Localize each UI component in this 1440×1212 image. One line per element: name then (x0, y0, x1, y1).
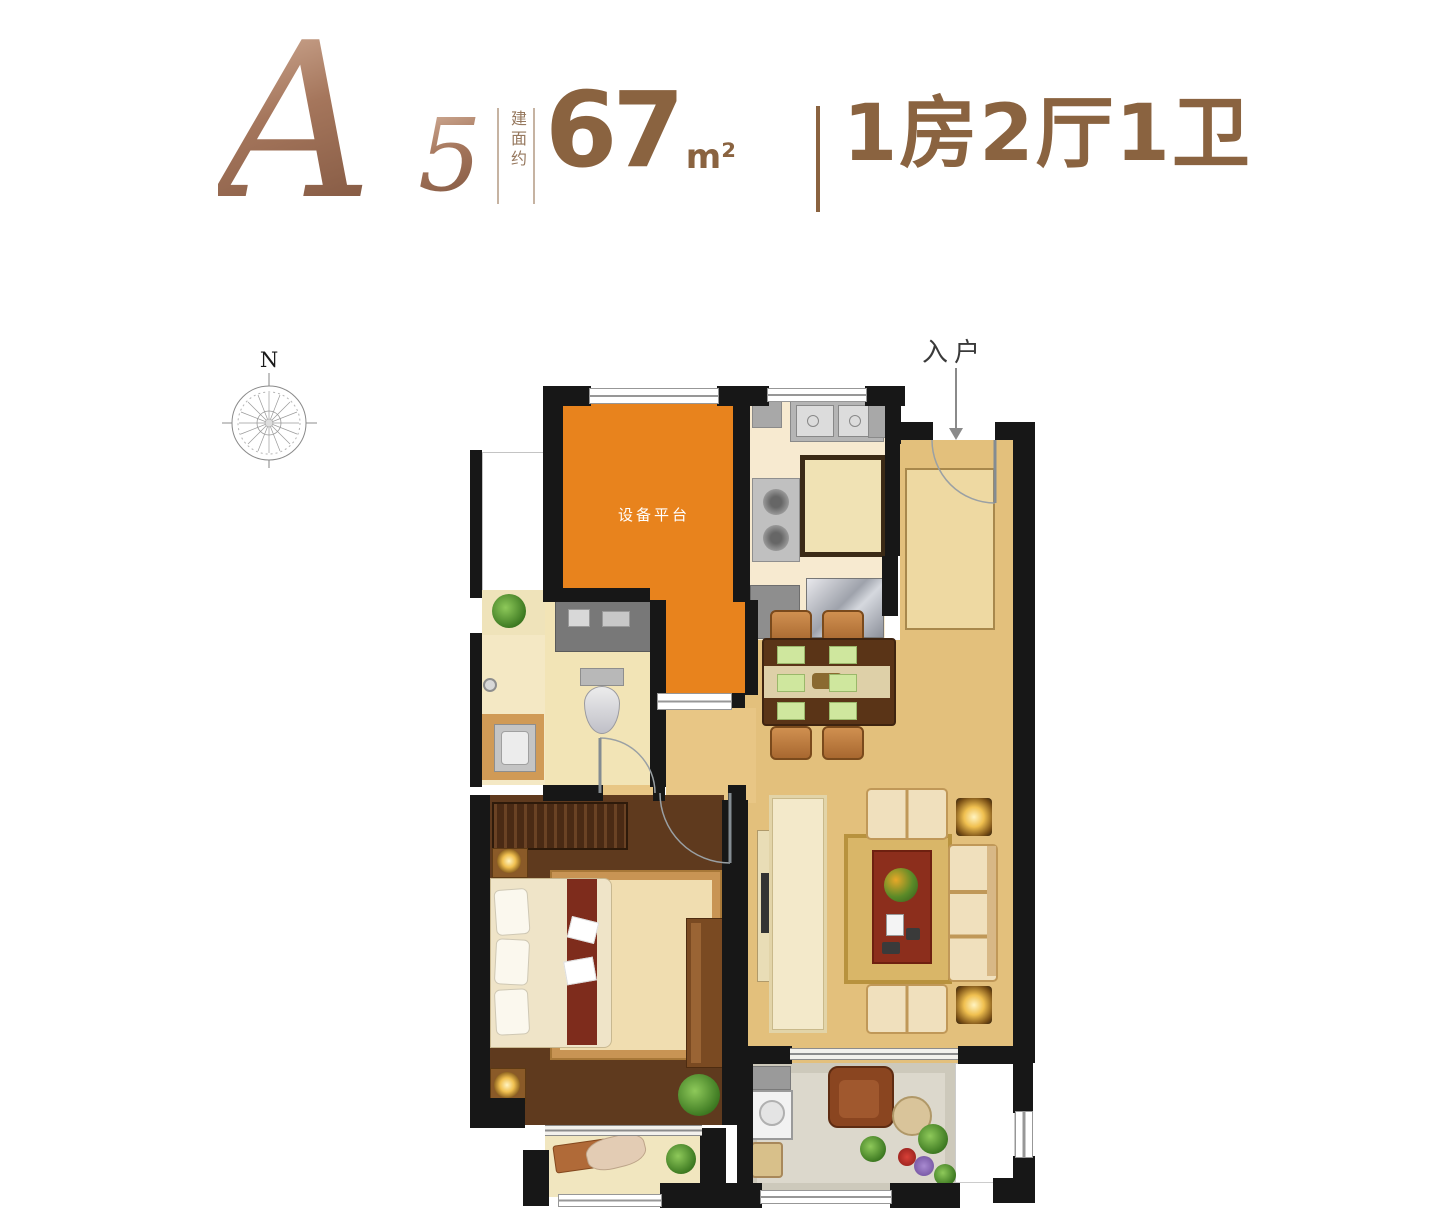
floor-plan: 设备平台 (470, 378, 1035, 1210)
plan-code: A 5 (218, 14, 538, 234)
area-prefix: 建面约 (497, 108, 535, 204)
page: { "header": { "plan_code_letter": "A", "… (0, 0, 1440, 1212)
area-value: 67 (545, 78, 680, 182)
plan-code-letter: A (218, 14, 373, 229)
layout-text: 1房2厅1卫 (843, 92, 1252, 178)
equipment-platform-label: 设备平台 (563, 504, 745, 525)
area-figure: 67 m² (545, 78, 736, 182)
area-unit: m² (686, 140, 736, 174)
compass-north-label: N (260, 348, 278, 372)
door-swing-arcs (470, 378, 1035, 1210)
header-divider (816, 106, 820, 212)
compass-rose-icon: N (222, 345, 317, 470)
plan-code-number: 5 (418, 106, 482, 206)
entry-label: 入户 (922, 332, 986, 369)
